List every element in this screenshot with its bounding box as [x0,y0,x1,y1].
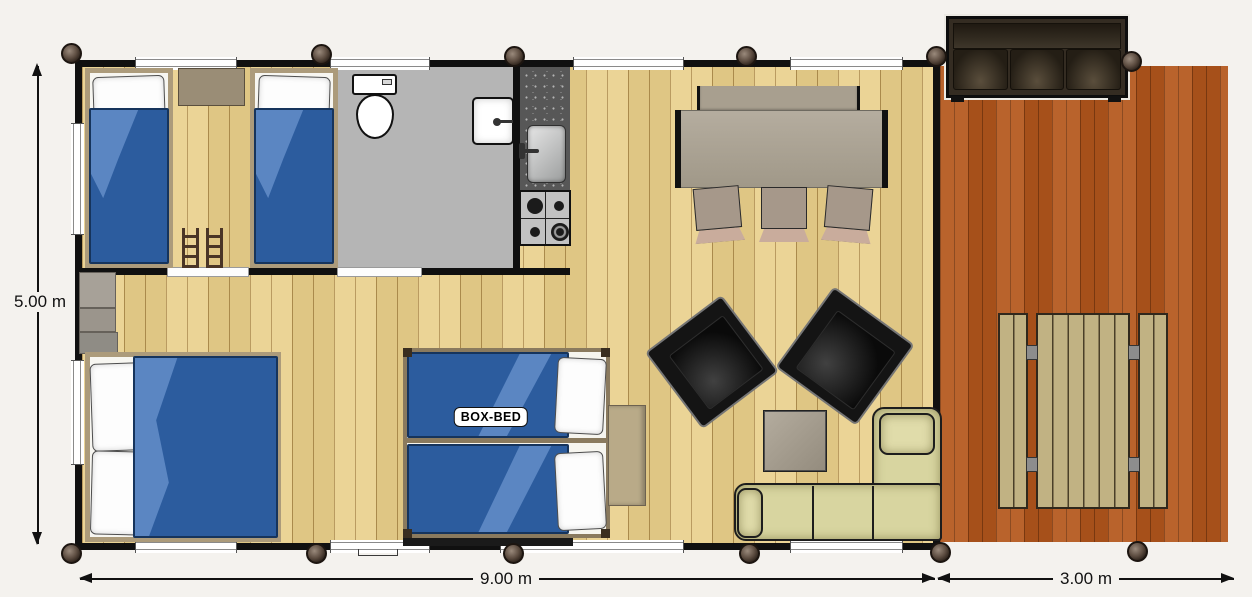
window-left-1 [71,123,84,235]
duvet-double [133,356,278,538]
dining-chair [759,187,809,243]
dim-arrow [922,573,935,583]
roof-knob [739,543,760,564]
dining-chair [691,185,746,245]
duvet-fold [256,110,332,262]
window-bottom-4 [790,540,903,553]
duvet-boxbed-bottom [407,444,569,534]
sofa-foot [951,96,964,102]
picnic-table [1036,313,1130,509]
nightstand [79,332,118,354]
sofa-main [734,483,942,541]
wall-bedroom-bottom-b [247,268,337,275]
roof-knob [736,46,757,67]
roof-knob [311,44,332,65]
roof-knob [926,46,947,67]
dim-arrow [937,573,950,583]
terrace-sofa-backrest [953,23,1121,49]
bedside-cabinet [178,68,245,106]
sofa-seam [812,486,814,539]
burner [551,223,569,241]
sink-faucet-spout [523,149,539,153]
wardrobe-cabinet [608,405,646,506]
roof-knob [61,543,82,564]
sofa-armrest [737,488,763,538]
dining-bench [697,86,860,111]
dim-label-cabin-width: 9.00 m [473,569,539,589]
duvet-fold [135,358,276,536]
terrace-sofa [946,16,1128,98]
floor-plan: BOX-BED 5.00 m 9.00 m 3.00 m [0,0,1252,597]
window-top-3 [573,57,684,70]
ladder-left [182,228,199,268]
dining-chair [821,185,876,245]
roof-knob [504,46,525,67]
door-handle [358,549,398,556]
sofa-seam [872,486,874,539]
pillow [554,357,607,435]
bed-post [601,348,610,357]
picnic-bench-left [998,313,1028,509]
roof-knob [61,43,82,64]
picnic-bracket [1128,457,1140,472]
toilet-flush-button [382,79,392,85]
dining-table [675,110,888,188]
duvet-single-right [254,108,334,264]
dim-label-height: 5.00 m [7,292,73,312]
burner [554,201,564,211]
dim-arrow [32,63,42,76]
roof-knob [1127,541,1148,562]
bed-post [403,529,412,538]
terrace-sofa-seats [953,49,1121,90]
box-bed-label: BOX-BED [454,407,528,427]
box-bed-base [403,537,573,546]
roof-knob [503,543,524,564]
picnic-bracket [1026,457,1038,472]
window-left-2 [71,360,84,465]
storage-shelf [79,308,116,332]
duvet-single-left [89,108,169,264]
picnic-bracket [1026,345,1038,360]
burner [527,198,543,214]
basin-faucet-stem [499,120,513,123]
duvet-fold [409,446,567,532]
picnic-bracket [1128,345,1140,360]
storage-shelf [79,272,116,308]
bathroom-door-opening [337,267,422,277]
bed-post [403,348,412,357]
gas-hob [519,190,571,246]
picnic-bench-right [1138,313,1168,509]
dim-arrow [1221,573,1234,583]
box-bed-middle-rail [403,438,610,443]
window-top-2 [330,57,430,70]
ladder-right [206,228,223,268]
duvet-fold [91,110,167,262]
dim-label-terrace-width: 3.00 m [1053,569,1119,589]
dim-arrow [32,532,42,545]
bedroom-door-opening [167,267,249,277]
dim-arrow [79,573,92,583]
roof-knob [1121,51,1142,72]
pillow [554,451,607,531]
coffee-table [764,411,826,471]
roof-knob [930,542,951,563]
sofa-chaise-cushion [879,413,935,455]
wall-bathroom-bottom [420,268,570,275]
window-top-4 [790,57,903,70]
bed-post [601,529,610,538]
sofa-foot [1108,96,1121,102]
roof-knob [306,543,327,564]
kitchen-sink [527,125,566,183]
burner [530,227,540,237]
